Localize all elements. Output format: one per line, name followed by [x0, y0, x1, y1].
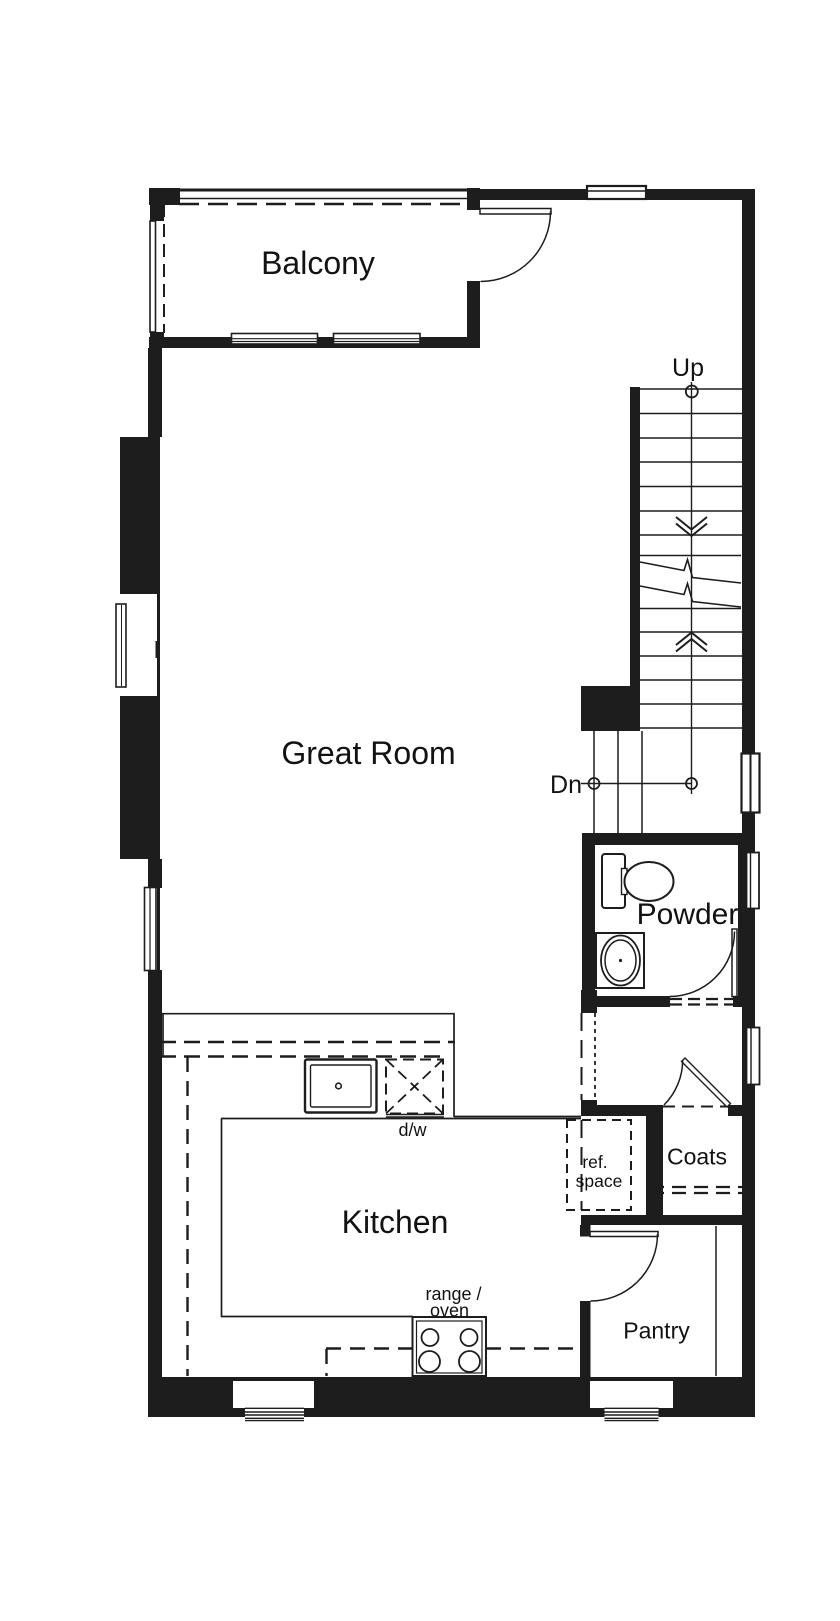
svg-text:d/w: d/w: [398, 1120, 427, 1140]
svg-text:Dn: Dn: [550, 771, 582, 799]
svg-text:Coats: Coats: [667, 1144, 727, 1170]
svg-text:Great Room: Great Room: [281, 735, 455, 771]
svg-text:Powder: Powder: [637, 898, 739, 931]
svg-text:oven: oven: [430, 1301, 469, 1321]
svg-text:Balcony: Balcony: [261, 245, 375, 281]
svg-text:Kitchen: Kitchen: [342, 1204, 449, 1240]
svg-text:ref.: ref.: [582, 1152, 607, 1172]
svg-text:space: space: [576, 1171, 623, 1191]
svg-text:Pantry: Pantry: [623, 1318, 690, 1344]
svg-text:Up: Up: [672, 354, 704, 382]
